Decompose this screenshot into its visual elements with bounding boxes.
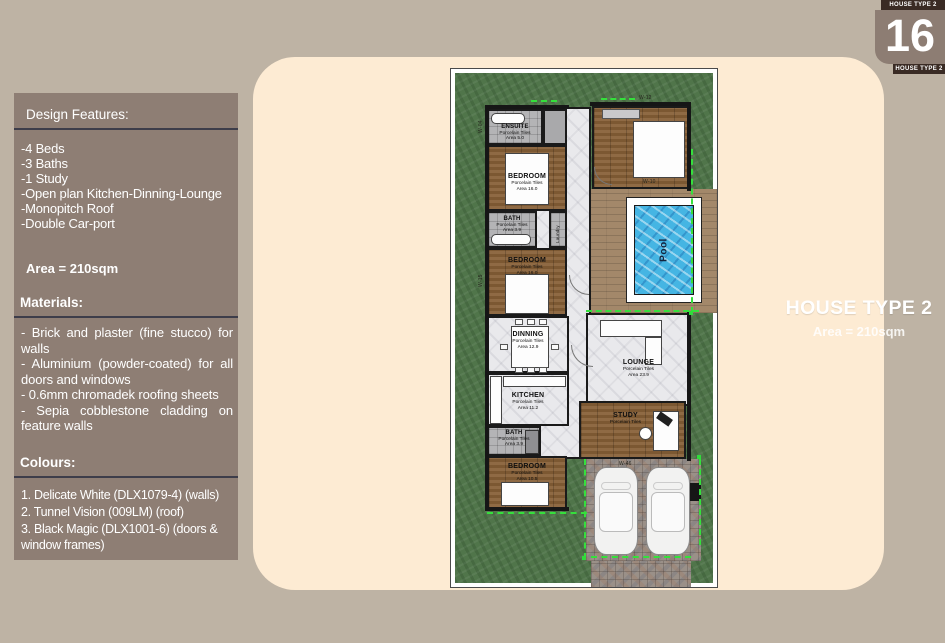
wall xyxy=(687,311,691,461)
area-line: Area = 210sqm xyxy=(26,261,228,276)
sofa-icon xyxy=(600,320,662,337)
wall xyxy=(485,105,569,109)
room-name: BEDROOM xyxy=(489,257,565,265)
feature-item: -Monopitch Roof xyxy=(21,201,234,216)
wall xyxy=(590,102,691,106)
bed-icon xyxy=(633,121,685,178)
room-name: Laundry xyxy=(555,225,560,243)
materials-list: - Brick and plaster (fine stucco) for wa… xyxy=(21,325,233,434)
badge-bottom-label: HOUSE TYPE 2 xyxy=(893,64,945,74)
room-bedroom-bottom: BEDROOM Porcelain Tiles Area 10.5 xyxy=(487,456,567,509)
feature-item: -3 Baths xyxy=(21,156,234,171)
feature-item: -4 Beds xyxy=(21,141,234,156)
colour-item: 1. Delicate White (DLX1079-4) (walls) xyxy=(21,487,236,503)
materials-heading: Materials: xyxy=(20,295,228,310)
window-label: W-04 xyxy=(478,120,484,133)
room-name: ENSUITE xyxy=(489,124,541,131)
room-name: DINNING xyxy=(489,331,567,339)
material-item: - Aluminium (powder-coated) for all door… xyxy=(21,356,233,387)
bathtub-icon xyxy=(491,234,531,245)
material-item: - Brick and plaster (fine stucco) for wa… xyxy=(21,325,233,356)
material-item: - 0.6mm chromadek roofing sheets xyxy=(21,387,233,403)
room-kitchen: KITCHEN Porcelain Tiles Area 11.2 xyxy=(487,373,569,426)
bathtub-icon xyxy=(491,113,525,124)
room-name: STUDY xyxy=(567,412,684,420)
car-icon xyxy=(594,467,638,555)
chair-icon xyxy=(527,367,535,373)
room-area: Area 5.0 xyxy=(489,136,541,142)
page-number-badge: HOUSE TYPE 2 16 HOUSE TYPE 2 xyxy=(875,0,945,74)
room-area: Area 12.9 xyxy=(489,345,567,351)
divider xyxy=(14,476,238,478)
windshield xyxy=(601,482,631,490)
feature-item: -Open plan Kitchen-Dinning-Lounge xyxy=(21,186,234,201)
car-roof xyxy=(651,492,685,532)
divider xyxy=(14,316,238,318)
window-label: W-10 xyxy=(643,179,656,185)
room-name: BATH xyxy=(489,430,539,437)
room-name: KITCHEN xyxy=(489,392,567,400)
boundary-dashed-line xyxy=(584,459,586,559)
wall xyxy=(485,507,569,511)
brochure-page: HOUSE TYPE 2 16 HOUSE TYPE 2 HOUSE TYPE … xyxy=(0,0,945,643)
material-item: - Sepia cobblestone cladding on feature … xyxy=(21,403,233,434)
divider xyxy=(14,128,238,130)
house-area-subtitle: Area = 210sqm xyxy=(770,324,945,339)
room-bedroom-mid: BEDROOM Porcelain Tiles Area 16.0 xyxy=(487,248,567,316)
survey-marker xyxy=(582,556,586,560)
room-area: Area 16.0 xyxy=(489,187,565,193)
room-area: Area 11.2 xyxy=(489,406,567,412)
bed-icon xyxy=(501,482,549,506)
room-finish: Porcelain Tiles xyxy=(567,420,684,426)
boundary-dashed-line xyxy=(601,98,635,100)
badge-top-label: HOUSE TYPE 2 xyxy=(881,0,945,10)
room-bath-mid: BATH Porcelain Tiles Area 3.9 xyxy=(487,211,537,248)
room-name: BEDROOM xyxy=(489,463,565,471)
car-icon xyxy=(646,467,690,555)
window-label: W-15 xyxy=(478,274,484,287)
chair-icon xyxy=(539,367,547,373)
room-area: Area 16.0 xyxy=(489,271,565,277)
room-name: LOUNGE xyxy=(588,359,689,367)
room-ensuite: ENSUITE Porcelain Tiles Area 5.0 xyxy=(487,109,543,145)
kitchen-counter-icon xyxy=(503,376,566,387)
room-study: STUDY Porcelain Tiles xyxy=(579,401,686,459)
room-area: Area 3.9 xyxy=(489,228,535,234)
wardrobe xyxy=(543,109,567,145)
room-area: Area 23.9 xyxy=(588,373,689,379)
spec-panel: Design Features: -4 Beds -3 Baths -1 Stu… xyxy=(14,93,238,560)
colour-item: 3. Black Magic (DLX1001-6) (doors & wind… xyxy=(21,521,236,553)
bed-icon xyxy=(505,274,549,314)
colours-heading: Colours: xyxy=(20,455,228,470)
boundary-dashed-line xyxy=(586,310,699,312)
boundary-dashed-line xyxy=(691,149,693,313)
chair-icon xyxy=(639,427,652,440)
boundary-dashed-line xyxy=(591,556,691,558)
pool-label: Pool xyxy=(659,238,670,262)
room-lounge: LOUNGE Porcelain Tiles Area 23.9 xyxy=(586,313,691,406)
feature-item: -1 Study xyxy=(21,171,234,186)
room-laundry: Laundry xyxy=(549,211,567,248)
room-name: BEDROOM xyxy=(489,173,565,181)
design-features-list: -4 Beds -3 Baths -1 Study -Open plan Kit… xyxy=(21,141,234,231)
house-type-title: HOUSE TYPE 2 xyxy=(770,297,945,320)
room-bedroom-top: BEDROOM Porcelain Tiles Area 16.0 xyxy=(487,145,567,211)
floor-plan: ENSUITE Porcelain Tiles Area 5.0 BEDROOM… xyxy=(450,68,718,588)
chair-icon xyxy=(515,319,523,325)
design-features-heading: Design Features: xyxy=(26,107,228,122)
room-bath-bottom: BATH Porcelain Tiles Area 3.9 xyxy=(487,426,541,456)
chair-icon xyxy=(539,319,547,325)
colours-list: 1. Delicate White (DLX1079-4) (walls) 2.… xyxy=(21,487,236,553)
boundary-dashed-line xyxy=(699,459,701,545)
room-area: Area 3.9 xyxy=(489,442,539,448)
room-dinning: DINNING Porcelain Tiles Area 12.9 xyxy=(487,316,569,373)
boundary-dashed-line xyxy=(487,512,587,514)
boundary-dashed-line xyxy=(531,100,557,102)
pool: Pool xyxy=(634,205,694,295)
window-label: W-12 xyxy=(639,95,652,101)
chair-icon xyxy=(527,319,535,325)
colour-item: 2. Tunnel Vision (009LM) (roof) xyxy=(21,504,236,520)
window-label: W-46 xyxy=(619,461,632,467)
wall xyxy=(485,105,489,511)
survey-marker xyxy=(697,455,701,459)
car-roof xyxy=(599,492,633,532)
page-number: 16 xyxy=(875,10,945,64)
survey-marker xyxy=(689,311,693,315)
room-area: Area 10.5 xyxy=(489,477,565,483)
room-name: BATH xyxy=(489,216,535,223)
windshield xyxy=(653,482,683,490)
wardrobe xyxy=(602,109,640,119)
chair-icon xyxy=(515,367,523,373)
feature-item: -Double Car-port xyxy=(21,216,234,231)
